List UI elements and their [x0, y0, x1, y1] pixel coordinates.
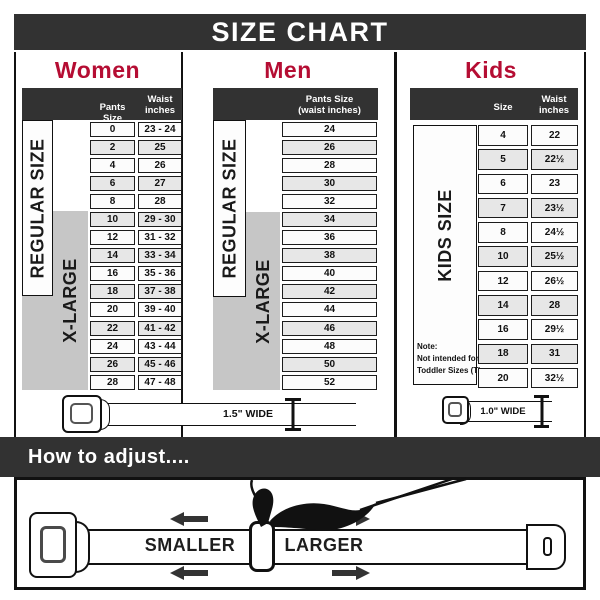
men-size-table: 242628303234363840424446485052 [282, 122, 377, 390]
women-section-heading: Women [14, 55, 181, 85]
size-cell: 29 - 30 [138, 212, 182, 227]
size-cell: 38 [282, 248, 377, 263]
arrow-right-icon [332, 511, 370, 527]
size-cell: 12 [478, 271, 528, 292]
size-cell: 10 [478, 246, 528, 267]
size-cell: 6 [478, 174, 528, 195]
kids-size-label-wrap: KIDS SIZE [413, 130, 477, 340]
size-cell: 6 [90, 176, 135, 191]
size-cell: 39 - 40 [138, 302, 182, 317]
men-regular-size-label: REGULAR SIZE [219, 138, 240, 278]
adult-belt-buckle-center [70, 403, 93, 424]
size-cell: 20 [90, 302, 135, 317]
size-cell: 26 [90, 357, 135, 372]
size-cell: 22 [90, 321, 135, 336]
size-cell: 28 [531, 295, 578, 316]
kids-size-table: 422522½623723½824½1025½1226½14281629½183… [478, 125, 578, 388]
men-col-pants-size: Pants Size (waist inches) [282, 94, 377, 117]
size-cell: 25 [138, 140, 182, 155]
size-cell: 10 [90, 212, 135, 227]
size-cell: 23 - 24 [138, 122, 182, 137]
men-xlarge-label: X-LARGE [253, 259, 274, 344]
size-cell: 31 [531, 344, 578, 365]
kids-col-size: Size [478, 102, 528, 113]
size-cell: 0 [90, 122, 135, 137]
smaller-label: SMALLER [138, 535, 242, 556]
size-cell: 23 [531, 174, 578, 195]
size-cell: 18 [90, 284, 135, 299]
size-cell: 36 [282, 230, 377, 245]
size-cell: 26 [282, 140, 377, 155]
arrow-left-icon [170, 565, 208, 581]
women-xlarge-label-box: X-LARGE [53, 211, 88, 390]
size-cell: 33 - 34 [138, 248, 182, 263]
size-cell: 14 [478, 295, 528, 316]
size-cell: 28 [138, 194, 182, 209]
kids-belt-buckle-center [448, 402, 462, 417]
size-cell: 50 [282, 357, 377, 372]
kids-belt-width-measure-icon [534, 395, 549, 428]
size-cell: 24½ [531, 222, 578, 243]
size-cell: 47 - 48 [138, 375, 182, 390]
size-cell: 32½ [531, 368, 578, 389]
size-cell: 30 [282, 176, 377, 191]
size-cell: 44 [282, 302, 377, 317]
size-cell: 52 [282, 375, 377, 390]
size-cell: 2 [90, 140, 135, 155]
size-cell: 4 [90, 158, 135, 173]
frame-left-border [14, 52, 16, 437]
size-cell: 16 [478, 319, 528, 340]
size-cell: 31 - 32 [138, 230, 182, 245]
men-xlarge-label-box: X-LARGE [246, 212, 280, 390]
section-divider [394, 52, 397, 437]
size-cell: 29½ [531, 319, 578, 340]
adjust-section-heading: How to adjust.... [0, 437, 600, 477]
size-cell: 22½ [531, 149, 578, 170]
size-cell: 23½ [531, 198, 578, 219]
men-regular-size-label-box: REGULAR SIZE [213, 120, 246, 297]
size-cell: 28 [282, 158, 377, 173]
size-cell: 24 [282, 122, 377, 137]
size-cell: 27 [138, 176, 182, 191]
adult-belt-width-label: 1.5" WIDE [214, 408, 282, 420]
size-cell: 8 [90, 194, 135, 209]
size-cell: 41 - 42 [138, 321, 182, 336]
size-cell: 46 [282, 321, 377, 336]
size-cell: 16 [90, 266, 135, 281]
size-cell: 14 [90, 248, 135, 263]
size-cell: 22 [531, 125, 578, 146]
women-col-waist: Waist inches [138, 94, 182, 117]
size-cell: 48 [282, 339, 377, 354]
women-regular-size-label-box: REGULAR SIZE [22, 120, 53, 296]
size-cell: 42 [282, 284, 377, 299]
size-cell: 20 [478, 368, 528, 389]
women-regular-size-label: REGULAR SIZE [27, 138, 48, 278]
size-cell: 24 [90, 339, 135, 354]
arrow-right-icon [332, 565, 370, 581]
size-cell: 37 - 38 [138, 284, 182, 299]
size-cell: 40 [282, 266, 377, 281]
kids-section-heading: Kids [397, 55, 585, 85]
frame-right-border [584, 52, 586, 437]
kids-note: Note: Not intended for Toddler Sizes (T) [417, 341, 481, 377]
page-title: SIZE CHART [14, 14, 586, 50]
size-cell: 43 - 44 [138, 339, 182, 354]
women-size-table: 023 - 242254266278281029 - 301231 - 3214… [90, 122, 182, 390]
adjust-belt-tip-slot [543, 537, 552, 556]
size-cell: 34 [282, 212, 377, 227]
larger-label: LARGER [282, 535, 366, 556]
size-cell: 28 [90, 375, 135, 390]
size-chart-infographic: SIZE CHART Women Men Kids Pants Size Wai… [0, 0, 600, 600]
size-cell: 12 [90, 230, 135, 245]
size-cell: 4 [478, 125, 528, 146]
size-cell: 32 [282, 194, 377, 209]
kids-col-waist: Waist inches [530, 94, 578, 117]
size-cell: 18 [478, 344, 528, 365]
size-cell: 26½ [531, 271, 578, 292]
kids-belt-width-label: 1.0" WIDE [472, 406, 534, 417]
size-cell: 8 [478, 222, 528, 243]
kids-size-label: KIDS SIZE [435, 189, 456, 282]
adult-belt-width-measure-icon [285, 398, 301, 431]
size-cell: 7 [478, 198, 528, 219]
women-xlarge-label: X-LARGE [60, 258, 81, 343]
men-section-heading: Men [182, 55, 394, 85]
adjust-belt-buckle-center [40, 526, 66, 563]
size-cell: 5 [478, 149, 528, 170]
arrow-left-icon [170, 511, 208, 527]
size-cell: 45 - 46 [138, 357, 182, 372]
size-cell: 35 - 36 [138, 266, 182, 281]
adjust-belt-slider [249, 521, 275, 572]
size-cell: 26 [138, 158, 182, 173]
size-cell: 25½ [531, 246, 578, 267]
